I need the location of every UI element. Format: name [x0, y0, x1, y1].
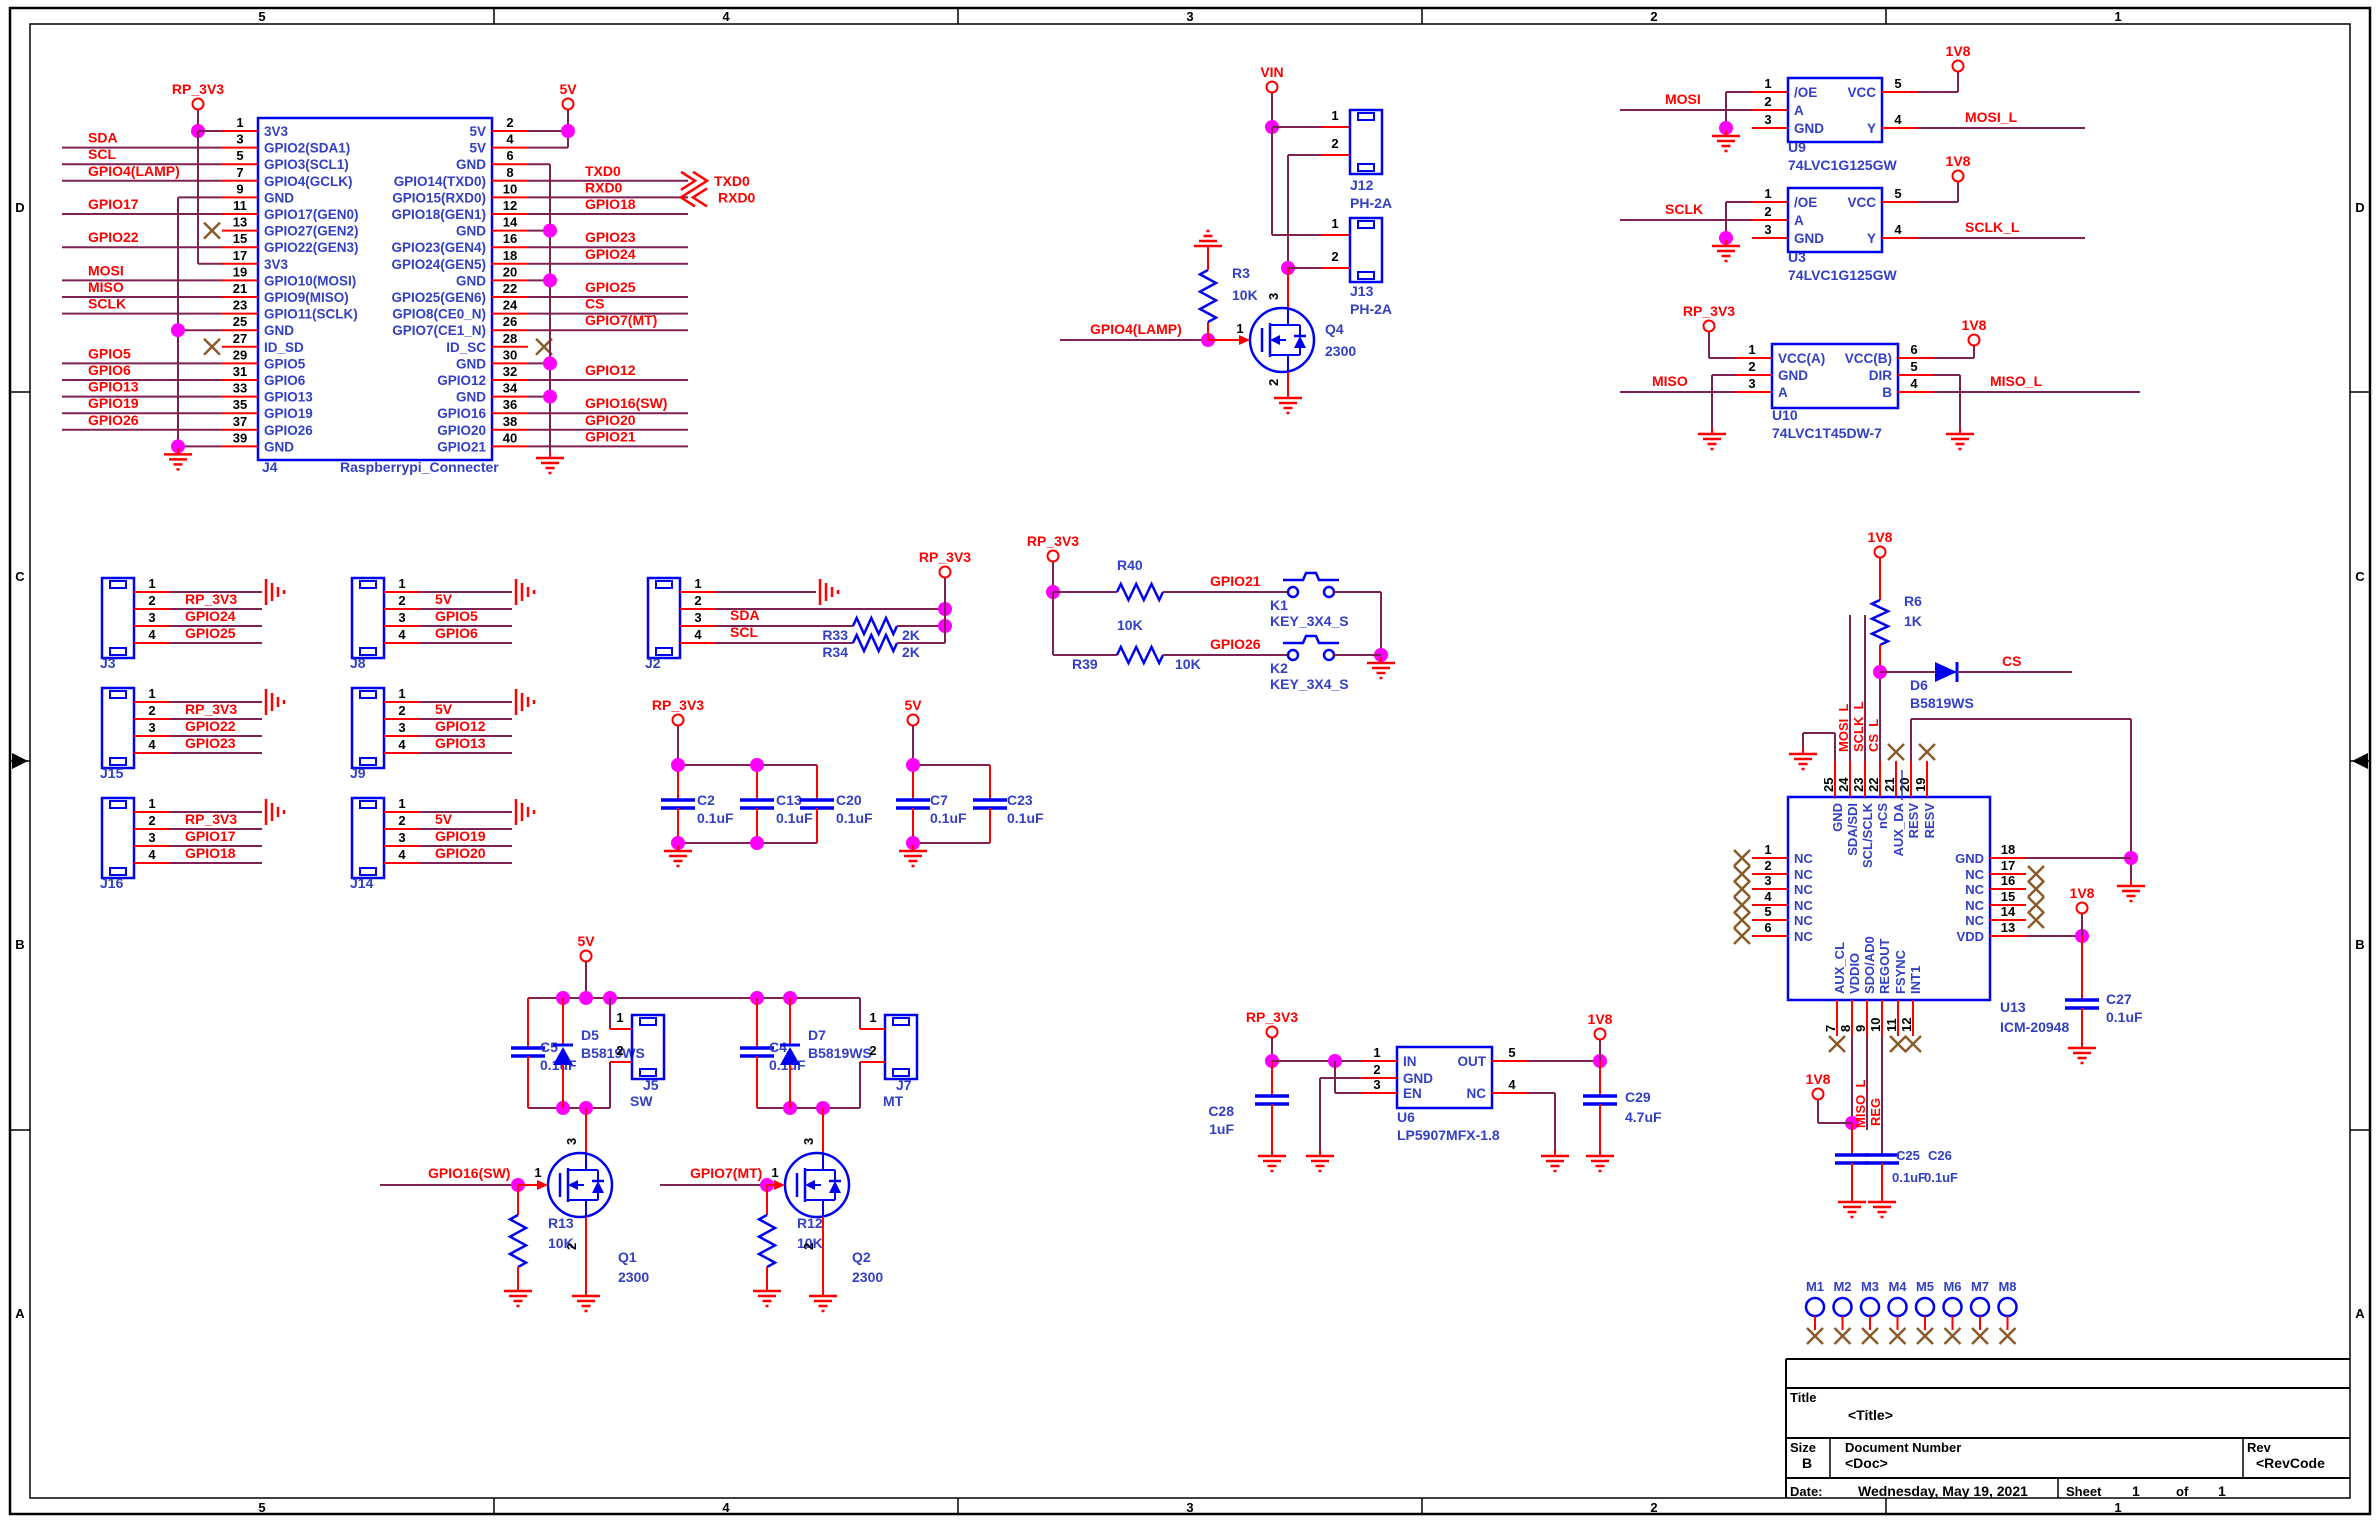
ref-des[interactable]: J16 — [100, 875, 124, 891]
date-label: Date: — [1790, 1484, 1823, 1499]
net-label[interactable]: TXD0 — [585, 163, 621, 179]
ref-des[interactable]: C25 — [1896, 1148, 1920, 1163]
ref-des[interactable]: R40 — [1117, 557, 1143, 573]
power-label[interactable]: 5V — [559, 81, 577, 97]
net-label[interactable]: GPIO5 — [435, 608, 478, 624]
net-label[interactable]: SCLK — [88, 296, 126, 312]
diode[interactable] — [1935, 662, 1957, 682]
net-label[interactable]: GPIO17 — [185, 828, 236, 844]
net-label[interactable]: GPIO6 — [88, 362, 131, 378]
pin-number: 2 — [869, 1043, 876, 1058]
part-value[interactable]: 0.1uF — [2106, 1009, 2143, 1025]
mosfet-arrow[interactable] — [568, 1180, 578, 1190]
key-switch[interactable] — [1288, 587, 1298, 597]
mount-hole[interactable] — [1916, 1298, 1934, 1316]
resistor[interactable] — [510, 1215, 526, 1267]
ref-des[interactable]: C4 — [769, 1039, 787, 1055]
title-value[interactable]: <Title> — [1848, 1407, 1893, 1423]
mount-hole[interactable] — [1889, 1298, 1907, 1316]
net-label[interactable]: GPIO24 — [585, 246, 636, 262]
part-name[interactable]: KEY_3X4_S — [1270, 676, 1349, 692]
net-label[interactable]: SDA — [730, 607, 760, 623]
connector-tab[interactable] — [110, 801, 126, 808]
power-label[interactable]: VIN — [1260, 64, 1283, 80]
part-value[interactable]: 1uF — [1209, 1121, 1234, 1137]
ref-des[interactable]: J4 — [262, 459, 278, 475]
pin-label: NC — [1794, 867, 1813, 882]
sheet-total[interactable]: 1 — [2218, 1483, 2226, 1499]
pin-label: /OE — [1794, 85, 1817, 100]
part-name[interactable]: LP5907MFX-1.8 — [1397, 1127, 1500, 1143]
doc-number-value[interactable]: <Doc> — [1845, 1455, 1888, 1471]
pin-number: 5 — [236, 148, 243, 163]
pin-number: 15 — [2001, 889, 2015, 904]
mount-hole[interactable] — [1999, 1298, 2017, 1316]
net-label[interactable]: MISO — [1652, 373, 1688, 389]
ref-des[interactable]: M1 — [1806, 1279, 1824, 1294]
schematic-canvas[interactable]: 5544332211DDCCBBAATitle<Title>SizeBDocum… — [0, 0, 2380, 1522]
j8-body[interactable] — [352, 578, 384, 658]
ref-des[interactable]: U9 — [1788, 139, 1806, 155]
power-flag[interactable] — [563, 99, 574, 110]
net-label[interactable]: SCLK — [1665, 201, 1703, 217]
part-value[interactable]: 0.1uF — [776, 810, 813, 826]
power-flag[interactable] — [940, 567, 951, 578]
connector-tab[interactable] — [360, 648, 376, 655]
ref-des[interactable]: M2 — [1833, 1279, 1851, 1294]
power-flag[interactable] — [1595, 1029, 1606, 1040]
net-label[interactable]: SCLK_L — [1965, 219, 2020, 235]
rev-value[interactable]: <RevCode — [2256, 1455, 2325, 1471]
power-label[interactable]: 5V — [577, 933, 595, 949]
power-flag[interactable] — [193, 99, 204, 110]
net-label[interactable]: GPIO20 — [585, 412, 636, 428]
net-label[interactable]: GPIO24 — [185, 608, 236, 624]
power-label[interactable]: 1V8 — [1868, 529, 1893, 545]
ref-des[interactable]: R33 — [822, 627, 848, 643]
net-label[interactable]: GPIO18 — [185, 845, 236, 861]
net-label[interactable]: SCL — [730, 624, 758, 640]
ref-des[interactable]: D7 — [808, 1027, 826, 1043]
ref-des[interactable]: M7 — [1971, 1279, 1989, 1294]
pin-label: GPIO12 — [437, 373, 486, 388]
pin-number: 4 — [1910, 376, 1918, 391]
part-name[interactable]: PH-2A — [1350, 195, 1392, 211]
part-value[interactable]: 0.1uF — [697, 810, 734, 826]
pin-number: 17 — [2001, 858, 2015, 873]
pin-label: IN — [1403, 1054, 1417, 1069]
part-value[interactable]: 10K — [1232, 287, 1258, 303]
pin-number: 11 — [1884, 1018, 1899, 1032]
part-value[interactable]: 2300 — [618, 1269, 649, 1285]
power-flag[interactable] — [1704, 321, 1715, 332]
ref-des[interactable]: Q4 — [1325, 321, 1344, 337]
net-label[interactable]: GPIO23 — [185, 735, 236, 751]
pin-number: 9 — [236, 181, 243, 196]
net-label[interactable]: GPIO19 — [435, 828, 486, 844]
mount-hole[interactable] — [1861, 1298, 1879, 1316]
net-label[interactable]: GPIO13 — [88, 379, 139, 395]
net-label[interactable]: SDA — [88, 130, 118, 146]
part-value[interactable]: 0.1uF — [930, 810, 967, 826]
sheet-number[interactable]: 1 — [2132, 1483, 2140, 1499]
pin-label: GPIO11(SCLK) — [264, 307, 358, 322]
part-name[interactable]: B5819WS — [1910, 695, 1974, 711]
net-label[interactable]: CS — [2002, 653, 2021, 669]
net-label[interactable]: GPIO25 — [585, 279, 636, 295]
net-label[interactable]: REG — [1868, 1098, 1883, 1126]
net-label[interactable]: GPIO6 — [435, 625, 478, 641]
junction-dot — [543, 390, 557, 404]
net-label[interactable]: GPIO16(SW) — [428, 1165, 510, 1181]
pin-number: 2 — [148, 703, 155, 718]
power-label[interactable]: 1V8 — [1806, 1071, 1831, 1087]
mount-hole[interactable] — [1834, 1298, 1852, 1316]
net-label[interactable]: MISO — [88, 279, 124, 295]
ref-des[interactable]: C13 — [776, 792, 802, 808]
offpage-in-arrow[interactable] — [693, 188, 707, 206]
pin-number: 25 — [1821, 778, 1836, 792]
part-value[interactable]: 0.1uF — [1924, 1170, 1958, 1185]
ref-des[interactable]: M5 — [1916, 1279, 1934, 1294]
ref-des[interactable]: R6 — [1904, 593, 1922, 609]
ref-des[interactable]: J3 — [100, 655, 116, 671]
ref-des[interactable]: Q2 — [852, 1249, 871, 1265]
j3-body[interactable] — [102, 578, 134, 658]
ref-des[interactable]: J5 — [643, 1077, 659, 1093]
pin-number: 7 — [1823, 1025, 1838, 1032]
part-name[interactable]: PH-2A — [1350, 301, 1392, 317]
net-label[interactable]: MOSI_L — [1836, 704, 1851, 752]
part-name[interactable]: 74LVC1G125GW — [1788, 157, 1897, 173]
part-value[interactable]: 0.1uF — [1007, 810, 1044, 826]
power-label[interactable]: 1V8 — [1946, 43, 1971, 59]
ref-des[interactable]: M3 — [1861, 1279, 1879, 1294]
pin-label: GPIO19 — [264, 406, 313, 421]
mosfet-arrow[interactable] — [1270, 335, 1280, 345]
net-label[interactable]: RXD0 — [585, 179, 623, 195]
connector-tab[interactable] — [110, 691, 126, 698]
pin-label: ID_SC — [446, 340, 486, 355]
connector-tab[interactable] — [1358, 164, 1374, 171]
power-flag[interactable] — [673, 715, 684, 726]
ref-des[interactable]: J9 — [350, 765, 366, 781]
power-label[interactable]: RP_3V3 — [1027, 533, 1079, 549]
part-value[interactable]: 2300 — [1325, 343, 1356, 359]
power-label[interactable]: RP_3V3 — [1246, 1009, 1298, 1025]
key-switch[interactable] — [1283, 573, 1339, 580]
ref-des[interactable]: J7 — [896, 1077, 912, 1093]
sheet-label: Sheet — [2066, 1484, 2102, 1499]
pin-number: 2 — [801, 1243, 816, 1250]
mosfet-body-diode[interactable] — [592, 1181, 604, 1193]
pin-number: 3 — [1266, 293, 1281, 300]
net-label[interactable]: GPIO21 — [585, 428, 636, 444]
j14-body[interactable] — [352, 798, 384, 878]
pin-label: 5V — [469, 124, 486, 139]
power-label[interactable]: RP_3V3 — [652, 697, 704, 713]
junction-dot — [906, 758, 920, 772]
pin-number: 28 — [503, 331, 517, 346]
power-label[interactable]: 1V8 — [2070, 885, 2095, 901]
power-label[interactable]: 1V8 — [1946, 153, 1971, 169]
pin-number: 2 — [564, 1243, 579, 1250]
net-label[interactable]: GPIO7(MT) — [585, 312, 657, 328]
part-value[interactable]: 2300 — [852, 1269, 883, 1285]
mount-hole[interactable] — [1944, 1298, 1962, 1316]
part-name[interactable]: B5819WS — [808, 1045, 872, 1061]
power-label[interactable]: RP_3V3 — [919, 549, 971, 565]
power-flag[interactable] — [581, 951, 592, 962]
mount-hole[interactable] — [1971, 1298, 1989, 1316]
resistor[interactable] — [1872, 600, 1888, 645]
part-name[interactable]: 74LVC1T45DW-7 — [1772, 425, 1882, 441]
net-label[interactable]: GPIO20 — [435, 845, 486, 861]
ref-des[interactable]: U3 — [1788, 249, 1806, 265]
ref-des[interactable]: C20 — [836, 792, 862, 808]
part-value[interactable]: 10K — [1117, 617, 1143, 633]
ref-des[interactable]: C5 — [540, 1039, 558, 1055]
ref-des[interactable]: C29 — [1625, 1089, 1651, 1105]
mosfet-arrow[interactable] — [805, 1180, 815, 1190]
ruler-letter: C — [15, 569, 25, 584]
power-flag[interactable] — [1813, 1089, 1824, 1100]
power-flag[interactable] — [1267, 82, 1278, 93]
net-label[interactable]: GPIO26 — [88, 412, 139, 428]
mount-hole[interactable] — [1806, 1298, 1824, 1316]
part-value[interactable]: 4.7uF — [1625, 1109, 1662, 1125]
ref-des[interactable]: M8 — [1998, 1279, 2016, 1294]
power-label[interactable]: 1V8 — [1588, 1011, 1613, 1027]
connector-tab[interactable] — [110, 648, 126, 655]
pin-number: 21 — [1882, 778, 1897, 792]
connector-tab[interactable] — [110, 868, 126, 875]
resistor[interactable] — [1200, 270, 1216, 322]
mosfet-body-diode[interactable] — [829, 1181, 841, 1193]
net-label[interactable]: CS_L — [1866, 719, 1881, 752]
net-label[interactable]: GPIO4(LAMP) — [1090, 321, 1182, 337]
power-label[interactable]: 1V8 — [1962, 317, 1987, 333]
pin-number: 2 — [694, 593, 701, 608]
part-value[interactable]: 0.1uF — [1892, 1170, 1926, 1185]
connector-tab[interactable] — [893, 1069, 909, 1076]
pin-number: 8 — [1838, 1025, 1853, 1032]
net-label[interactable]: SCL — [88, 146, 116, 162]
junction-dot — [750, 758, 764, 772]
net-label[interactable]: 5V — [435, 591, 453, 607]
net-label[interactable]: GPIO7(MT) — [690, 1165, 762, 1181]
j9-body[interactable] — [352, 688, 384, 768]
pin-number: 2 — [1331, 249, 1338, 264]
net-label[interactable]: RP_3V3 — [185, 811, 237, 827]
ref-des[interactable]: R3 — [1232, 265, 1250, 281]
j2-body[interactable] — [648, 578, 680, 658]
net-label[interactable]: RP_3V3 — [185, 591, 237, 607]
ref-des[interactable]: U13 — [2000, 999, 2026, 1015]
part-name[interactable]: ICM-20948 — [2000, 1019, 2069, 1035]
connector-tab[interactable] — [360, 801, 376, 808]
power-flag[interactable] — [1267, 1027, 1278, 1038]
net-label[interactable]: GPIO13 — [435, 735, 486, 751]
net-label[interactable]: GPIO19 — [88, 395, 139, 411]
power-flag[interactable] — [1048, 551, 1059, 562]
net-label[interactable]: GPIO12 — [585, 362, 636, 378]
power-label[interactable]: 5V — [904, 697, 922, 713]
ref-des[interactable]: K1 — [1270, 597, 1288, 613]
part-name[interactable]: SW — [630, 1093, 653, 1109]
connector-tab[interactable] — [640, 1018, 656, 1025]
connector-tab[interactable] — [656, 648, 672, 655]
ref-des[interactable]: R12 — [797, 1215, 823, 1231]
mosfet-body-diode[interactable] — [1294, 336, 1306, 348]
part-name[interactable]: Raspberrypi_Connecter — [340, 459, 499, 475]
ref-des[interactable]: D5 — [581, 1027, 599, 1043]
net-label[interactable]: MOSI — [1665, 91, 1701, 107]
resistor[interactable] — [759, 1215, 775, 1267]
part-value[interactable]: 10K — [1175, 656, 1201, 672]
ref-des[interactable]: J13 — [1350, 283, 1374, 299]
connector-tab[interactable] — [656, 581, 672, 588]
net-label[interactable]: GPIO18 — [585, 196, 636, 212]
resistor[interactable] — [853, 618, 897, 634]
part-value[interactable]: 0.1uF — [836, 810, 873, 826]
ref-des[interactable]: C27 — [2106, 991, 2132, 1007]
ref-des[interactable]: J15 — [100, 765, 124, 781]
ref-des[interactable]: U10 — [1772, 407, 1798, 423]
connector-tab[interactable] — [1358, 221, 1374, 228]
ref-des[interactable]: C2 — [697, 792, 715, 808]
ref-des[interactable]: C7 — [930, 792, 948, 808]
ref-des[interactable]: R34 — [822, 644, 848, 660]
connector-tab[interactable] — [360, 868, 376, 875]
ref-des[interactable]: M6 — [1943, 1279, 1961, 1294]
part-name[interactable]: 74LVC1G125GW — [1788, 267, 1897, 283]
pin-number: 26 — [503, 314, 517, 329]
ref-des[interactable]: C28 — [1208, 1103, 1234, 1119]
ref-des[interactable]: J12 — [1350, 177, 1374, 193]
ref-des[interactable]: K2 — [1270, 660, 1288, 676]
key-switch[interactable] — [1324, 650, 1334, 660]
part-name[interactable]: B5819WS — [581, 1045, 645, 1061]
power-flag[interactable] — [2077, 903, 2088, 914]
part-name[interactable]: MT — [883, 1093, 904, 1109]
connector-tab[interactable] — [1358, 113, 1374, 120]
ruler-letter: D — [15, 200, 24, 215]
net-label[interactable]: GPIO26 — [1210, 636, 1261, 652]
net-label[interactable]: GPIO22 — [185, 718, 236, 734]
part-name[interactable]: KEY_3X4_S — [1270, 613, 1349, 629]
net-label[interactable]: GPIO16(SW) — [585, 395, 667, 411]
net-label[interactable]: MISO_L — [1853, 1080, 1868, 1128]
net-label[interactable]: 5V — [435, 701, 453, 717]
key-switch[interactable] — [1288, 650, 1298, 660]
power-label[interactable]: RP_3V3 — [172, 81, 224, 97]
net-label[interactable]: MOSI_L — [1965, 109, 2018, 125]
net-label[interactable]: RP_3V3 — [185, 701, 237, 717]
resistor[interactable] — [1117, 647, 1163, 663]
key-switch[interactable] — [1324, 587, 1334, 597]
gate-arrow[interactable] — [774, 1180, 785, 1190]
pin-number: 3 — [1373, 1077, 1380, 1092]
net-label[interactable]: MOSI — [88, 262, 124, 278]
ref-des[interactable]: U6 — [1397, 1109, 1415, 1125]
pin-number: 3 — [564, 1138, 579, 1145]
ref-des[interactable]: R13 — [548, 1215, 574, 1231]
net-label[interactable]: GPIO17 — [88, 196, 139, 212]
connector-tab[interactable] — [640, 1069, 656, 1076]
net-label[interactable]: GPIO4(LAMP) — [88, 163, 180, 179]
resistor[interactable] — [1117, 584, 1163, 600]
connector-tab[interactable] — [110, 581, 126, 588]
power-label[interactable]: RP_3V3 — [1683, 303, 1735, 319]
pin-label: GPIO27(GEN2) — [264, 224, 359, 239]
ref-des[interactable]: J8 — [350, 655, 366, 671]
connector-tab[interactable] — [1358, 272, 1374, 279]
ref-des[interactable]: C26 — [1928, 1148, 1952, 1163]
ref-des[interactable]: C23 — [1007, 792, 1033, 808]
ref-des[interactable]: R39 — [1072, 656, 1098, 672]
net-label[interactable]: 5V — [435, 811, 453, 827]
offpage-label[interactable]: RXD0 — [718, 189, 756, 205]
connector-tab[interactable] — [360, 581, 376, 588]
pin-number: 24 — [503, 298, 518, 313]
pin-label: GPIO3(SCL1) — [264, 157, 349, 172]
gate-arrow[interactable] — [537, 1180, 548, 1190]
pin-number: 2 — [398, 813, 405, 828]
power-flag[interactable] — [1953, 171, 1964, 182]
size-value[interactable]: B — [1802, 1455, 1812, 1471]
pin-number: 1 — [771, 1165, 778, 1180]
gate-arrow[interactable] — [1239, 335, 1250, 345]
net-label[interactable]: GPIO21 — [1210, 573, 1261, 589]
connector-tab[interactable] — [360, 691, 376, 698]
power-flag[interactable] — [1953, 61, 1964, 72]
net-label[interactable]: GPIO5 — [88, 345, 131, 361]
connector-tab[interactable] — [110, 758, 126, 765]
part-value[interactable]: 2K — [902, 627, 920, 643]
junction-dot — [543, 224, 557, 238]
rev-label: Rev — [2247, 1440, 2272, 1455]
part-value[interactable]: 1K — [1904, 613, 1922, 629]
power-flag[interactable] — [1875, 547, 1886, 558]
net-label[interactable]: SCLK_L — [1851, 701, 1866, 752]
offpage-label[interactable]: TXD0 — [714, 173, 750, 189]
net-label[interactable]: GPIO25 — [185, 625, 236, 641]
connector-tab[interactable] — [893, 1018, 909, 1025]
ref-des[interactable]: J2 — [645, 655, 661, 671]
power-flag[interactable] — [908, 715, 919, 726]
net-label[interactable]: GPIO23 — [585, 229, 636, 245]
pin-number: 1 — [534, 1165, 541, 1180]
key-switch[interactable] — [1283, 636, 1339, 643]
pin-number: 23 — [1851, 778, 1866, 792]
ref-des[interactable]: M4 — [1888, 1279, 1907, 1294]
resistor[interactable] — [853, 635, 897, 651]
net-label[interactable]: GPIO22 — [88, 229, 139, 245]
connector-tab[interactable] — [360, 758, 376, 765]
net-label[interactable]: MISO_L — [1990, 373, 2043, 389]
ref-des[interactable]: D6 — [1910, 677, 1928, 693]
ref-des[interactable]: J14 — [350, 875, 374, 891]
ref-des[interactable]: Q1 — [618, 1249, 637, 1265]
net-label[interactable]: GPIO12 — [435, 718, 486, 734]
net-label[interactable]: CS — [585, 296, 604, 312]
j16-body[interactable] — [102, 798, 134, 878]
part-value[interactable]: 2K — [902, 644, 920, 660]
date-value[interactable]: Wednesday, May 19, 2021 — [1858, 1483, 2028, 1499]
power-flag[interactable] — [1969, 335, 1980, 346]
j15-body[interactable] — [102, 688, 134, 768]
